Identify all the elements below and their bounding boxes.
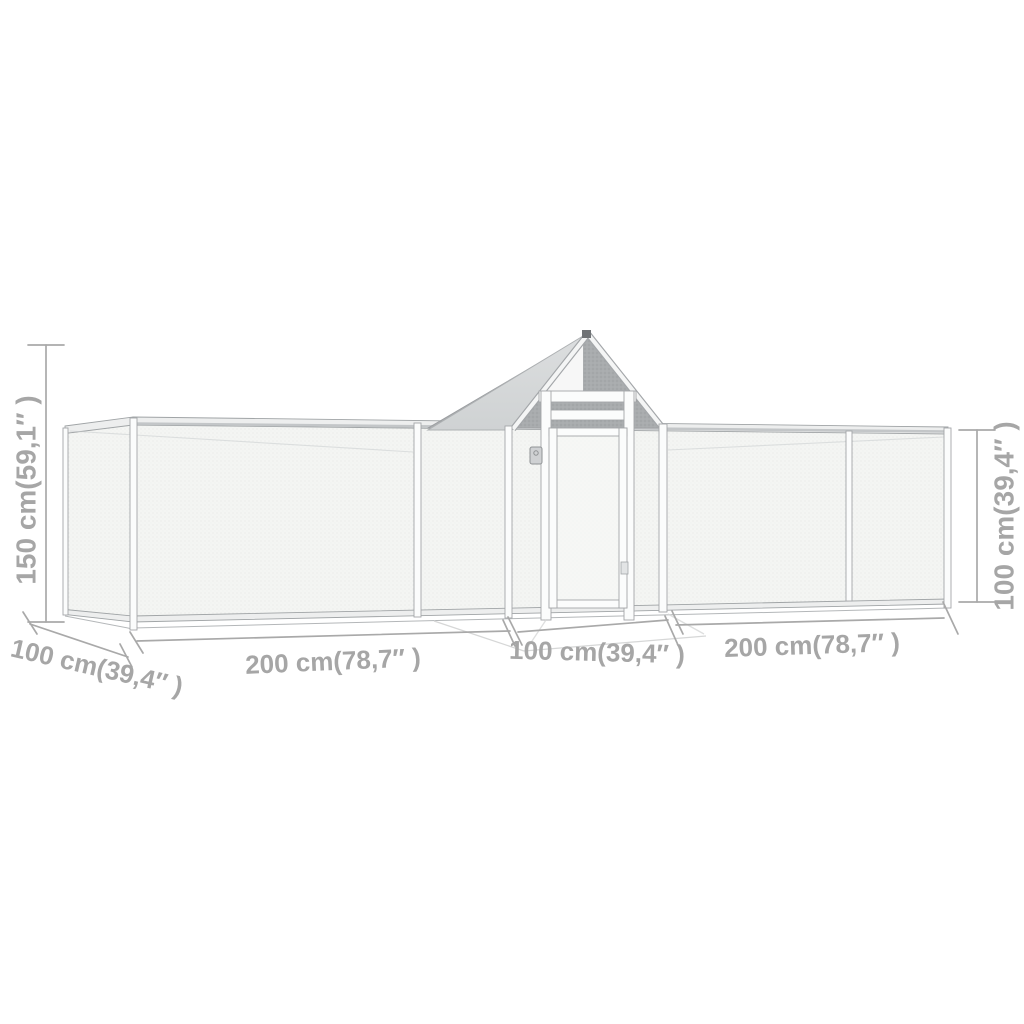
dimension-total-height: 150 cm(59,1″ ) [11,345,65,622]
dimension-side-height: 100 cm(39,4″ ) [959,421,1020,610]
label-side-height: 100 cm(39,4″ ) [989,421,1020,610]
post-gable-left [505,426,512,618]
label-depth: 100 cm(39,4″ ) [8,633,186,702]
label-total-height: 150 cm(59,1″ ) [11,395,42,584]
label-left-section: 200 cm(78,7″ ) [245,642,422,680]
dimension-middle-section: 100 cm(39,4″ ) [508,616,685,669]
post-section-divider-right [846,431,852,601]
label-right-section: 200 cm(78,7″ ) [724,627,901,663]
door-header [541,410,634,420]
door-hinge [621,562,628,574]
ridge-cap [582,330,591,338]
label-middle-section: 100 cm(39,4″ ) [509,635,686,670]
post-left-corner [130,418,137,630]
post-right-corner [944,428,951,608]
door-latch[interactable] [530,447,542,464]
post-section-divider-left [414,423,421,617]
door-leaf[interactable] [549,428,627,608]
door-header-top [539,391,636,402]
coop-structure [63,330,951,651]
post-gable-right [659,424,667,612]
left-end-panel [63,417,133,629]
dimension-depth: 100 cm(39,4″ ) [8,612,186,701]
coop-dimension-diagram: 150 cm(59,1″ ) 100 cm(39,4″ ) 100 cm(39,… [0,0,1024,1024]
